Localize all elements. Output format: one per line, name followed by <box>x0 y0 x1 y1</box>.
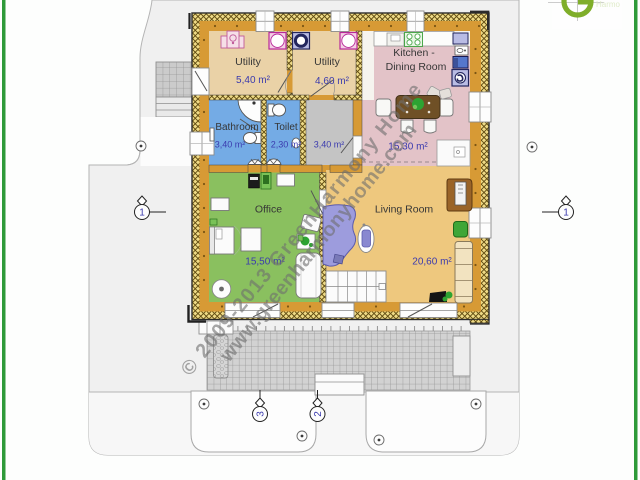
svg-text:Utility: Utility <box>314 56 340 68</box>
svg-text:Office: Office <box>255 204 282 216</box>
svg-text:Toilet: Toilet <box>274 122 298 133</box>
svg-text:3: 3 <box>256 411 267 417</box>
svg-text:2,30 m²: 2,30 m² <box>271 140 302 150</box>
svg-text:2: 2 <box>313 411 324 417</box>
svg-text:Bathroom: Bathroom <box>215 122 258 133</box>
svg-text:Harmo: Harmo <box>596 0 621 9</box>
svg-text:3,40 m²: 3,40 m² <box>314 140 345 150</box>
svg-text:4,60 m²: 4,60 m² <box>315 76 350 87</box>
svg-text:Kitchen -: Kitchen - <box>393 47 435 59</box>
svg-text:Utility: Utility <box>235 56 261 68</box>
svg-text:Living Room: Living Room <box>375 204 434 216</box>
svg-text:20,60 m²: 20,60 m² <box>412 257 452 268</box>
svg-text:3,40 m²: 3,40 m² <box>215 140 246 150</box>
svg-text:Dining Room: Dining Room <box>386 61 447 73</box>
svg-text:5,40 m²: 5,40 m² <box>236 75 271 86</box>
svg-text:1: 1 <box>563 208 569 219</box>
svg-text:1: 1 <box>139 208 145 219</box>
